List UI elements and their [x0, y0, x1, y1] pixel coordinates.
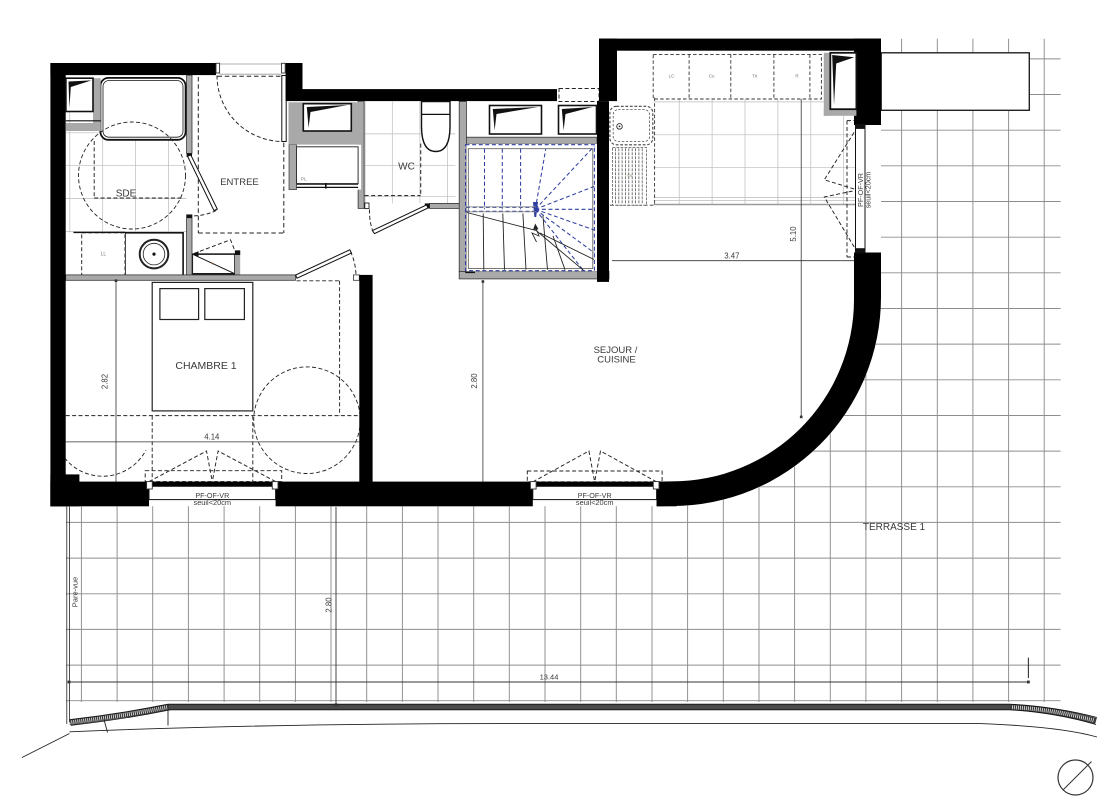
svg-text:CHAMBRE 1: CHAMBRE 1 — [175, 360, 236, 372]
svg-text:seuil<20cm: seuil<20cm — [576, 498, 614, 507]
svg-text:2.82: 2.82 — [101, 374, 110, 389]
svg-text:5.10: 5.10 — [789, 226, 798, 242]
svg-text:seuil<20cm: seuil<20cm — [194, 498, 232, 507]
svg-text:seuil<20cm: seuil<20cm — [864, 172, 873, 209]
svg-text:CUISINE: CUISINE — [597, 355, 636, 366]
svg-text:2.80: 2.80 — [470, 373, 479, 389]
svg-text:4.14: 4.14 — [204, 432, 220, 441]
svg-text:Tri: Tri — [752, 74, 757, 79]
svg-text:WC: WC — [398, 162, 415, 173]
svg-text:3.47: 3.47 — [724, 251, 739, 260]
svg-text:ENTREE: ENTREE — [220, 177, 259, 188]
svg-text:SDE: SDE — [116, 189, 137, 200]
svg-text:PL: PL — [301, 176, 307, 182]
svg-text:2.80: 2.80 — [325, 597, 334, 613]
svg-text:LC: LC — [669, 74, 676, 79]
svg-text:LL: LL — [101, 251, 107, 257]
svg-text:13.44: 13.44 — [540, 673, 559, 682]
svg-text:TERRASSE 1: TERRASSE 1 — [863, 522, 926, 533]
svg-text:LV: LV — [627, 173, 632, 178]
svg-text:Pare-vue: Pare-vue — [71, 577, 80, 607]
svg-text:Cu: Cu — [709, 74, 715, 79]
